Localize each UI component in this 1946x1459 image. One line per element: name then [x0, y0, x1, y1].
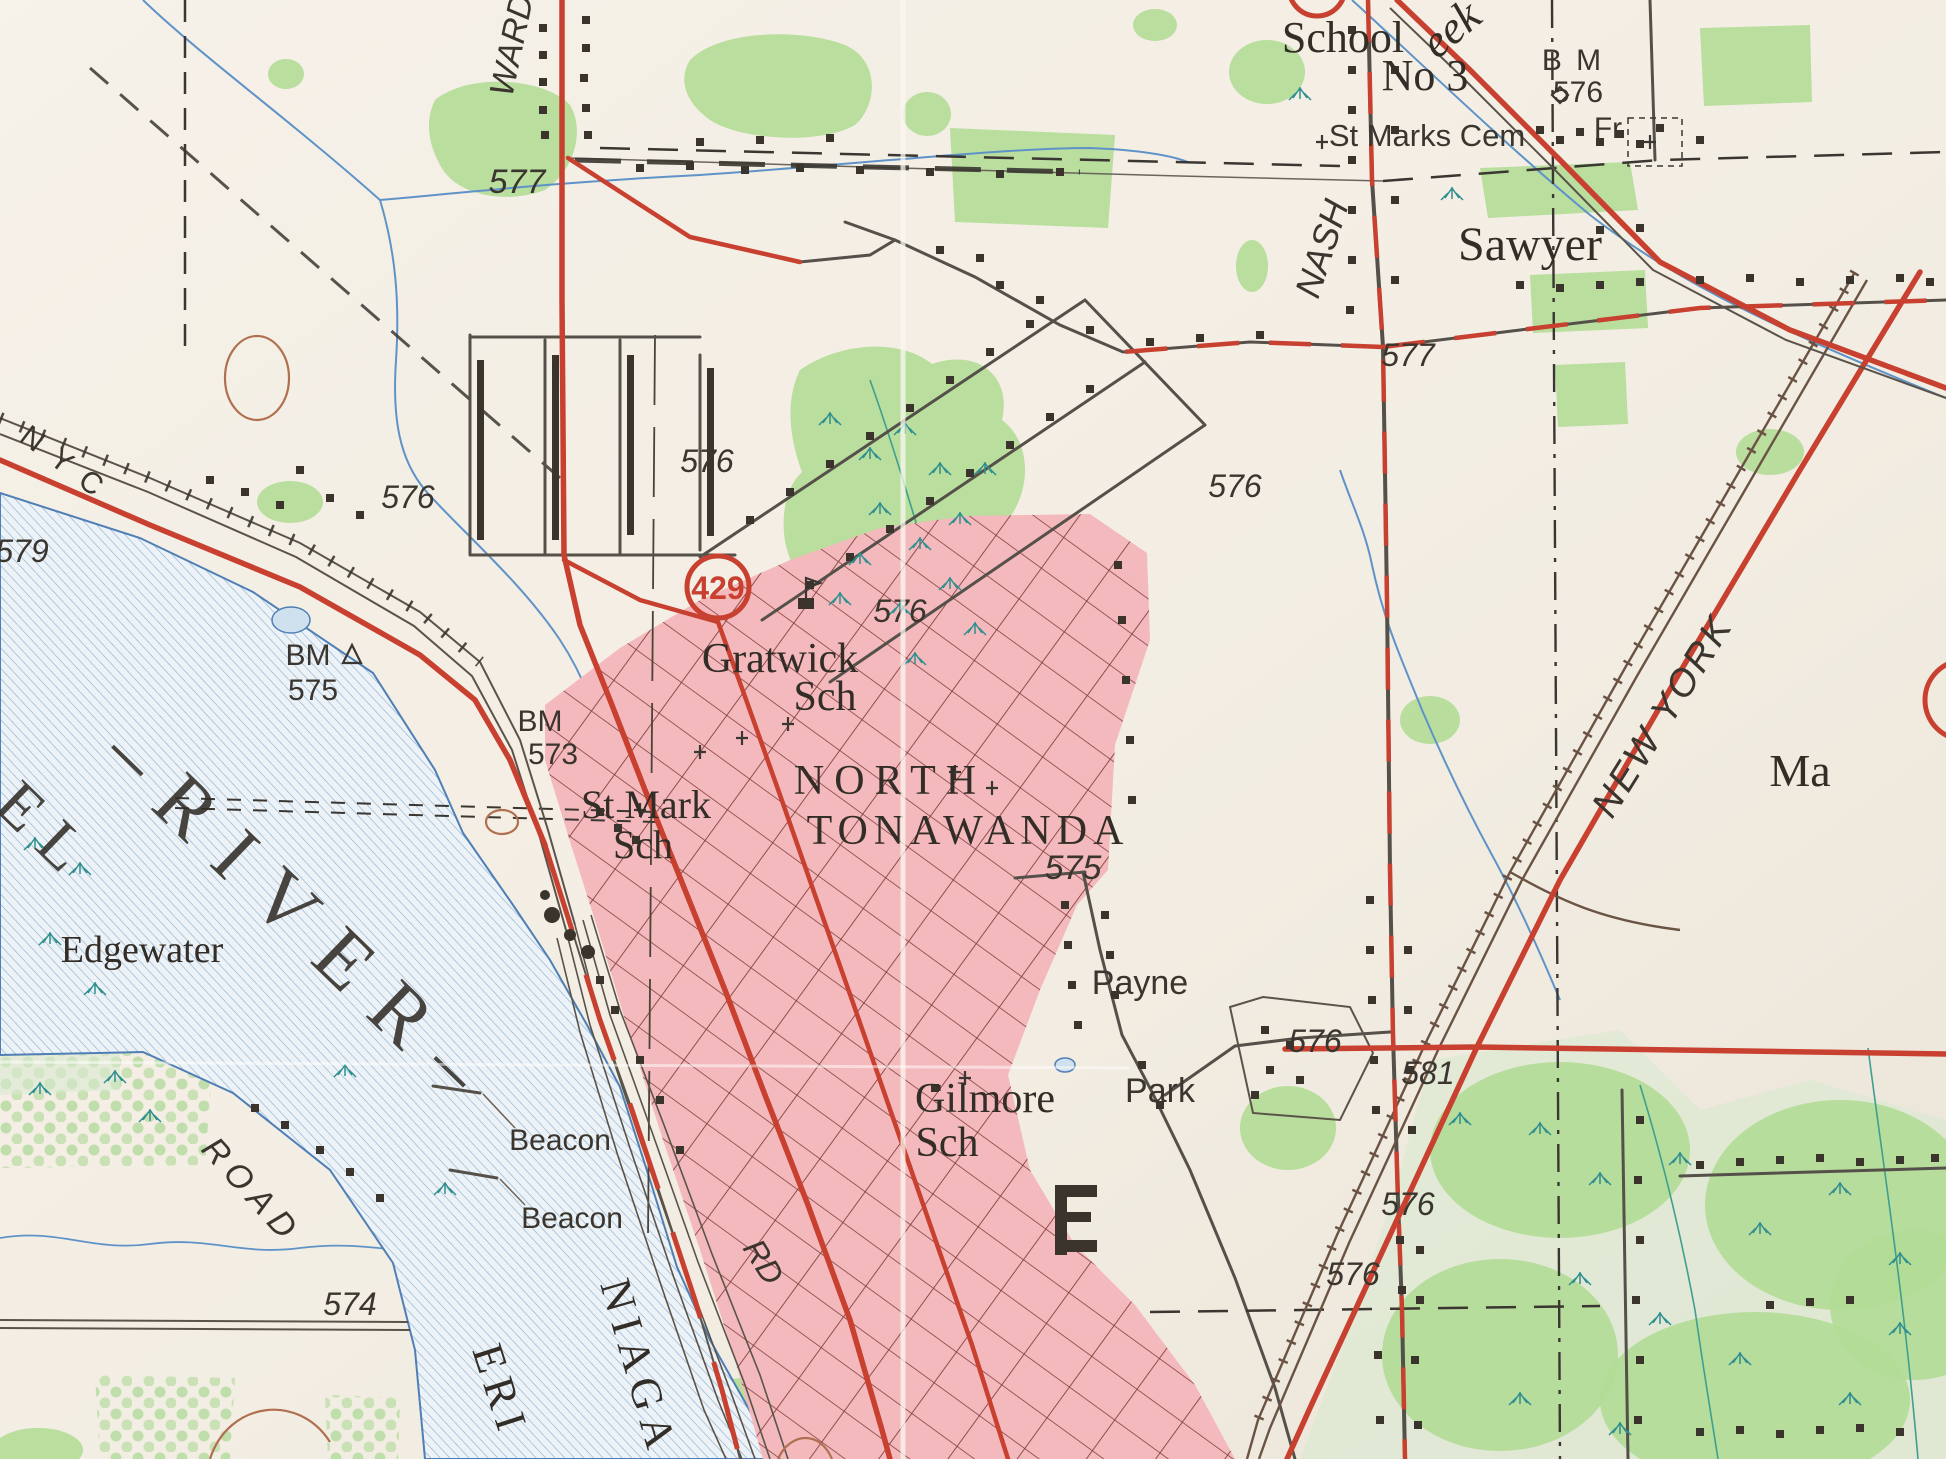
route-shield-429-number: 429 — [691, 570, 744, 606]
tank-4 — [540, 890, 550, 900]
label-north-tonawanda-1: NORTH — [794, 758, 986, 804]
label-bm573-2: 573 — [528, 738, 578, 771]
woods-small-3 — [1133, 9, 1177, 41]
label-elev-576-creek: 576 — [1208, 468, 1262, 504]
gratwick-school-building — [798, 598, 814, 609]
label-elev-577-nash: 577 — [1381, 337, 1436, 373]
label-beacon-2: Beacon — [521, 1202, 623, 1235]
rowhouses-1 — [477, 360, 484, 540]
label-north-tonawanda-2: TONAWANDA — [807, 808, 1130, 854]
woods-right-4 — [1736, 429, 1804, 475]
topo-map-photo: 429SchoolNo 3eekB M576FrSt Marks CemSawy… — [0, 0, 1946, 1459]
label-ma-fragment: Ma — [1769, 745, 1830, 796]
label-elev-576-low: 576 — [1326, 1256, 1380, 1292]
rowhouses-3 — [627, 355, 634, 535]
factory-e-mid — [1067, 1212, 1091, 1222]
label-gilmore-1: Gilmore — [915, 1076, 1055, 1122]
rowhouses-2 — [552, 355, 559, 540]
label-beacon-1: Beacon — [509, 1124, 611, 1157]
label-st-marks-cem: St Marks Cem — [1329, 118, 1525, 153]
label-park: Park — [1125, 1072, 1196, 1110]
tank-1 — [544, 907, 560, 923]
tank-3 — [581, 945, 595, 959]
woods-right-1 — [1530, 270, 1648, 333]
label-elev-581: 581 — [1401, 1055, 1454, 1091]
label-edgewater: Edgewater — [61, 929, 224, 971]
label-elev-574: 574 — [323, 1286, 376, 1322]
label-gratwick-2: Sch — [794, 674, 857, 720]
label-elev-576-park: 576 — [1288, 1023, 1342, 1059]
topo-map-canvas: 429SchoolNo 3eekB M576FrSt Marks CemSawy… — [0, 0, 1946, 1459]
factory-e-top — [1067, 1185, 1097, 1197]
factory-e-bottom — [1067, 1240, 1097, 1252]
label-elev-576-left: 576 — [381, 479, 435, 515]
label-stmark-1: St Mark — [581, 782, 711, 827]
label-stmark-2: Sch — [613, 822, 673, 867]
woods-bigswamp-1 — [1430, 1062, 1690, 1238]
woods-right-3 — [1400, 696, 1460, 744]
label-elev-576-sub: 576 — [680, 443, 734, 479]
label-elev-577-left: 577 — [489, 163, 547, 201]
label-school-no3-2: No 3 — [1382, 51, 1469, 100]
map-render-root: 429SchoolNo 3eekB M576FrSt Marks CemSawy… — [0, 0, 1946, 1459]
label-elev-576-mid: 576 — [1381, 1186, 1435, 1222]
pond-payne — [1055, 1058, 1075, 1072]
pond-small — [272, 607, 310, 633]
label-payne: Payne — [1092, 964, 1188, 1002]
label-elev-579: 579 — [0, 533, 49, 569]
orchard-area-3 — [325, 1395, 400, 1459]
label-sawyer: Sawyer — [1458, 218, 1602, 271]
woods-nash-oval — [1236, 240, 1268, 292]
label-bm576-2: 576 — [1553, 76, 1603, 109]
label-elev-575-swamp: 575 — [1045, 849, 1102, 887]
label-bm575-2: 575 — [288, 674, 338, 707]
label-bm576-1: B M — [1542, 44, 1604, 77]
label-elev-576-gratwick: 576 — [873, 593, 927, 629]
woods-small-1 — [268, 59, 304, 89]
woods-small-2 — [903, 92, 951, 136]
woods-nyc-corner — [257, 481, 323, 523]
factory-e-bar — [1055, 1185, 1067, 1255]
label-bm575-1: BM — [286, 639, 331, 672]
label-bm573-1: BM — [518, 705, 563, 738]
label-gilmore-2: Sch — [916, 1120, 979, 1166]
label-fr-fragment: Fr — [1594, 112, 1622, 145]
woods-nash-band — [950, 128, 1115, 228]
woods-right-2 — [1555, 362, 1628, 427]
tank-2 — [564, 929, 576, 941]
woods-top-right — [1700, 25, 1812, 106]
